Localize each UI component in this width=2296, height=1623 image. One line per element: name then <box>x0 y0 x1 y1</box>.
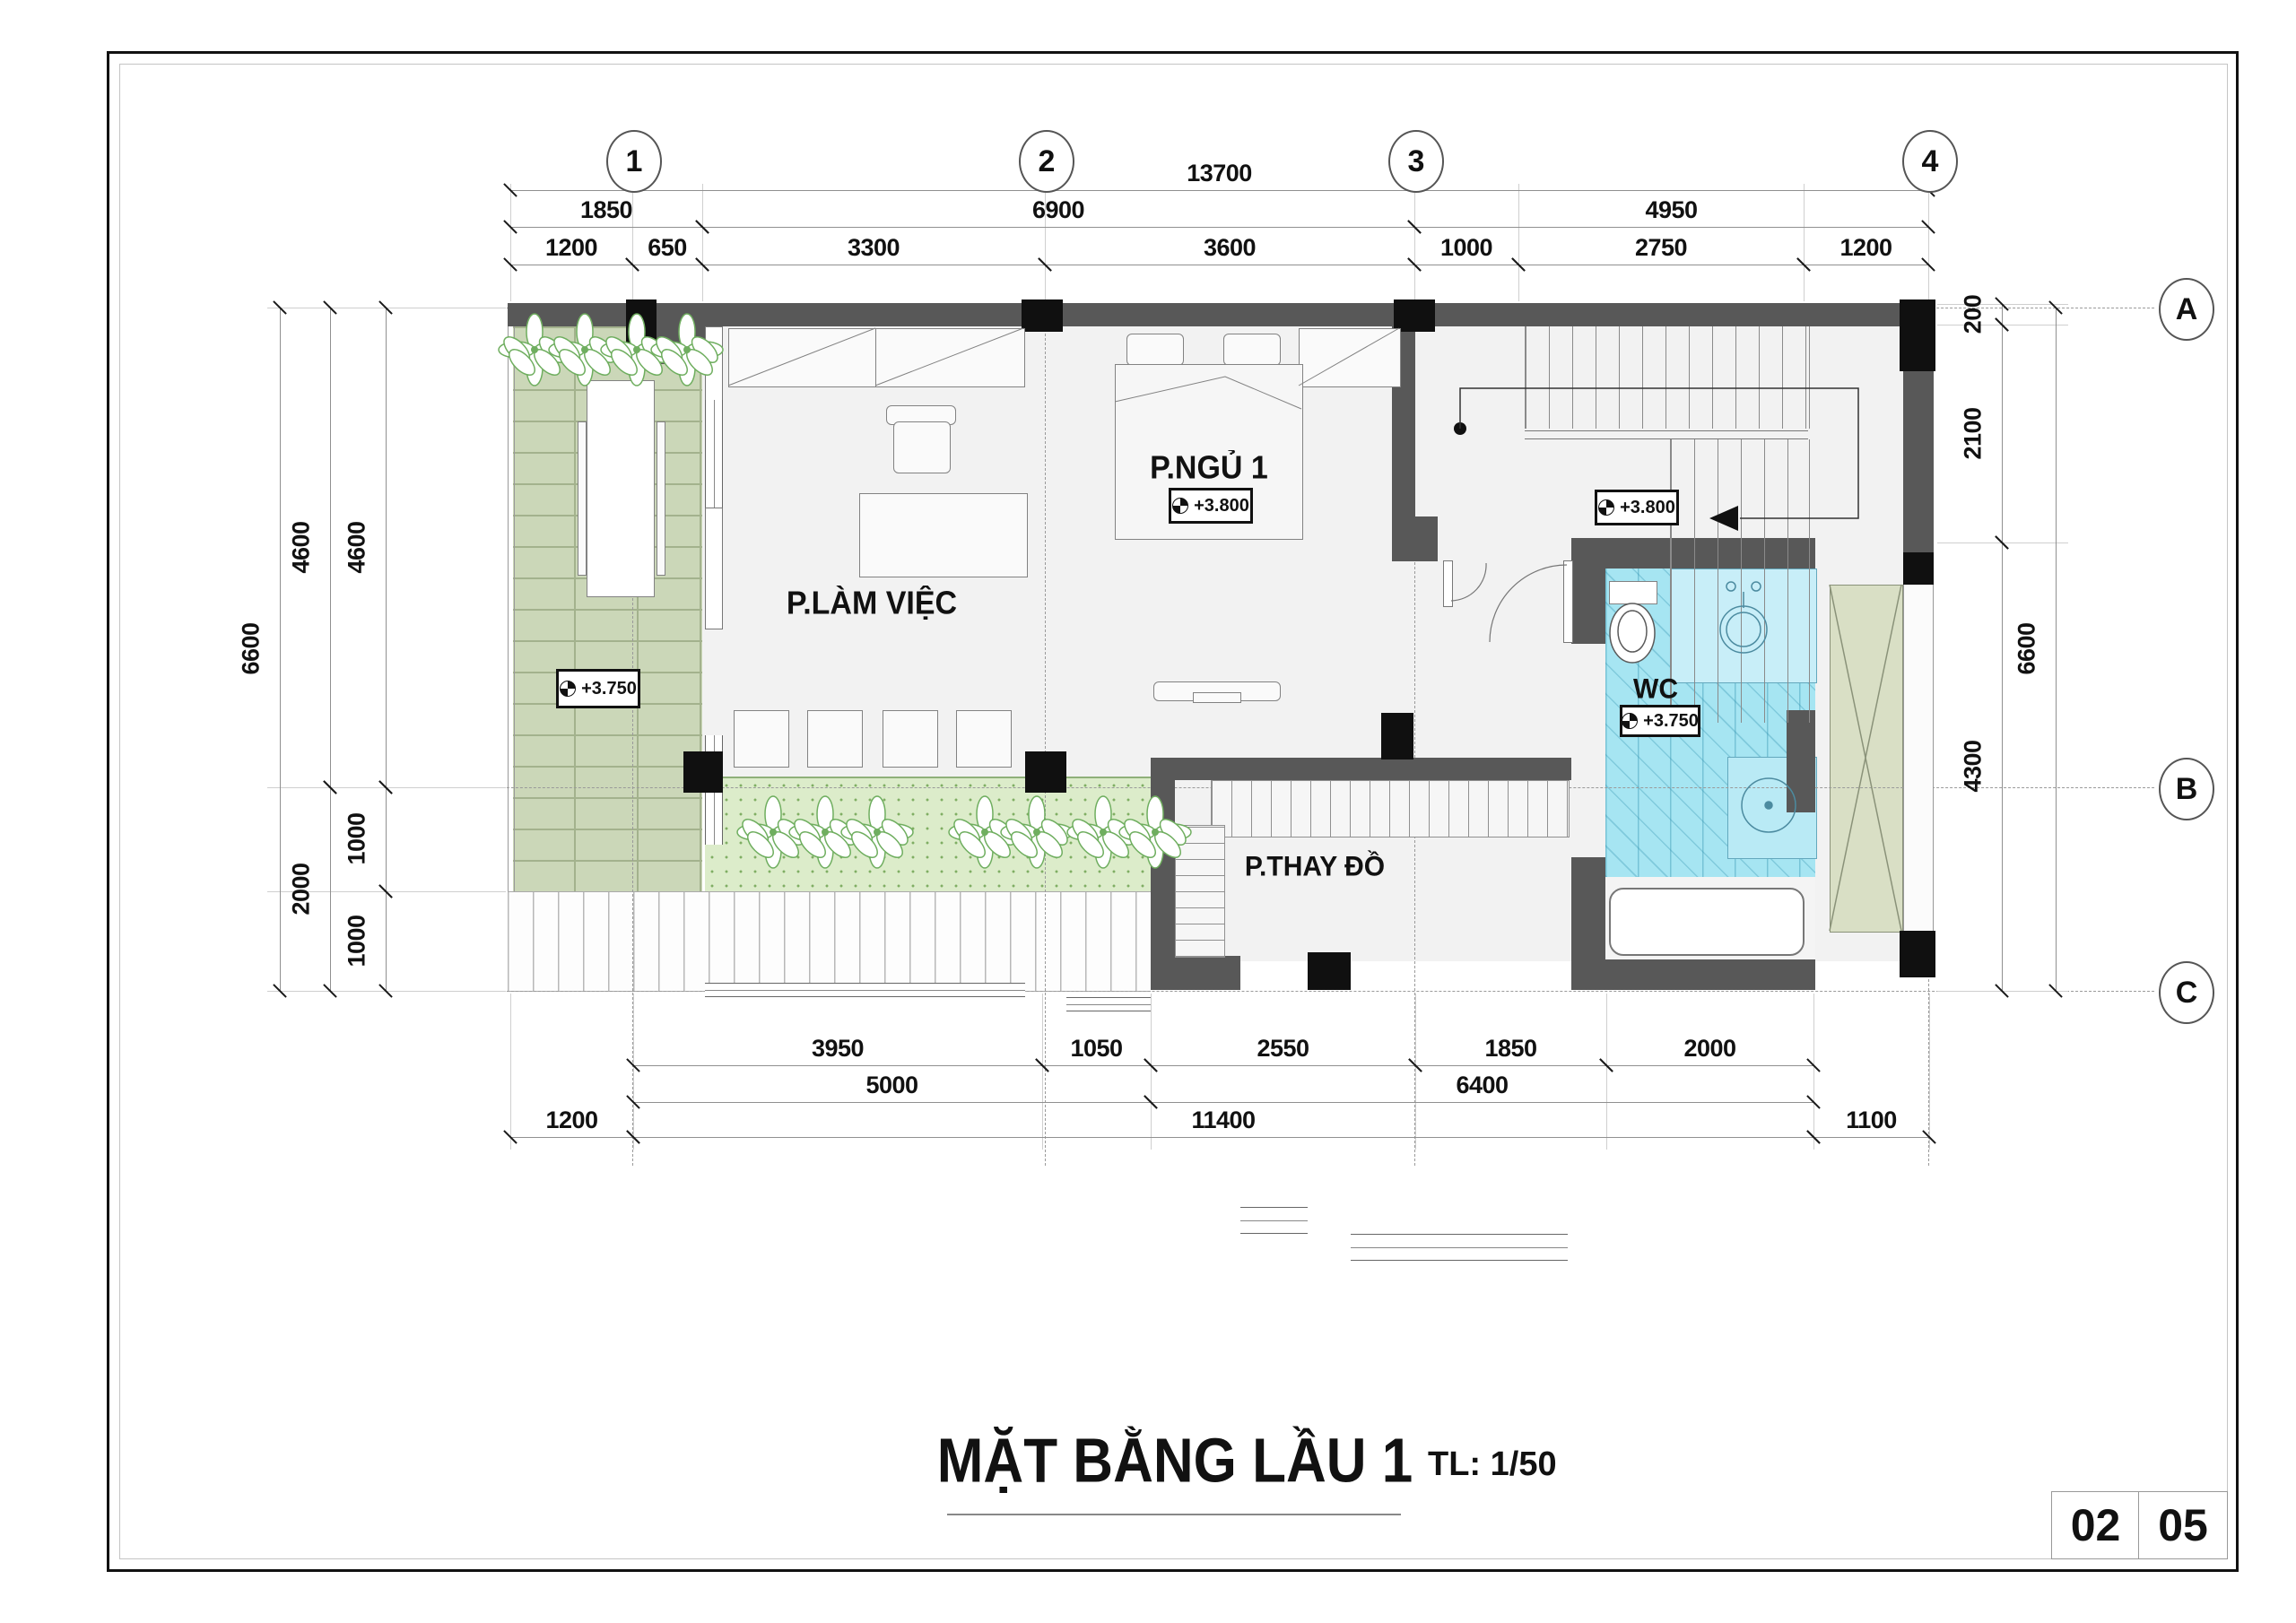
dimension-line <box>386 308 387 787</box>
wall-wc-left-upper <box>1571 568 1605 644</box>
dimension-line <box>2056 308 2057 991</box>
desk-chair-seat <box>893 421 951 473</box>
sheet-number-current: 02 <box>2051 1491 2140 1559</box>
wardrobe-left <box>1175 825 1225 958</box>
column-grid2-top <box>1022 299 1063 332</box>
office-left-window-1 <box>705 400 723 508</box>
level-value: +3.800 <box>1620 498 1675 518</box>
dimension-label: 1100 <box>1800 1107 1944 1134</box>
drawing-sheet: P.LÀM VIỆC P.NGỦ 1 P.THAY ĐỒ WC +3.750 +… <box>0 0 2296 1623</box>
wall-dressing-bottom <box>1151 956 1240 990</box>
drawing-scale: TL: 1/50 <box>1428 1445 1557 1484</box>
column-office-grid2 <box>1025 751 1066 793</box>
room-label-bedroom: P.NGỦ 1 <box>1110 450 1308 487</box>
dimension-line <box>1813 1137 1929 1138</box>
dimension-label: 1200 <box>500 1107 644 1134</box>
dimension-label: 2750 <box>1589 234 1733 262</box>
stair-upper-flight <box>1525 326 1810 429</box>
dimension-line <box>1414 265 1518 265</box>
closet-bedroom <box>1299 328 1401 387</box>
dimension-line <box>2002 325 2003 542</box>
sofa-seat-4 <box>956 710 1012 768</box>
wall-top-jog <box>653 325 705 364</box>
room-label-wc: WC <box>1615 673 1696 706</box>
dimension-line <box>510 190 1928 191</box>
office-bottom-window-2 <box>1066 997 1151 1011</box>
dimension-label: 11400 <box>1152 1107 1295 1134</box>
title-underline <box>947 1514 1401 1515</box>
level-badge-wc: +3.750 <box>1620 705 1700 737</box>
dimension-line <box>330 308 331 787</box>
column-office-left <box>683 751 723 793</box>
dimension-line <box>510 265 632 265</box>
column-bottom-mid <box>1308 952 1351 990</box>
dimension-label: 4600 <box>288 457 316 637</box>
wall-office-left-top <box>705 326 723 402</box>
dimension-line <box>386 891 387 991</box>
balcony-bench-left <box>578 421 587 576</box>
dimension-label: 6400 <box>1411 1072 1554 1099</box>
dimension-label: 1000 <box>344 851 371 1030</box>
level-icon <box>560 681 576 697</box>
door-jamb-left <box>1443 560 1453 607</box>
dimension-line <box>1606 1065 1813 1066</box>
dimension-label: 4950 <box>1600 196 1744 224</box>
dimension-line <box>633 1102 1151 1103</box>
column-hall <box>1381 713 1413 759</box>
desk <box>859 493 1028 577</box>
wall-top <box>508 303 1935 326</box>
balcony-table <box>587 380 655 597</box>
column-grid4-top <box>1900 299 1935 371</box>
dimension-label: 2550 <box>1212 1035 1355 1063</box>
wall-bathtub-bottom <box>1571 959 1815 990</box>
level-badge-stair: +3.800 <box>1595 490 1679 525</box>
dimension-line <box>702 265 1045 265</box>
drawing-title: MẶT BẰNG LẦU 1 <box>906 1426 1444 1497</box>
dimension-label: 5000 <box>821 1072 964 1099</box>
dimension-line <box>510 1137 633 1138</box>
column-grid1-top <box>626 299 657 344</box>
wall-wc-right-stub <box>1787 710 1815 812</box>
dimension-line <box>386 787 387 891</box>
dimension-line <box>1414 227 1928 228</box>
dimension-line <box>1518 265 1804 265</box>
dimension-line <box>330 787 331 991</box>
level-badge-bedroom: +3.800 <box>1169 488 1253 524</box>
dimension-label: 4600 <box>344 457 371 637</box>
dimension-line <box>633 1065 1042 1066</box>
grid-line-column <box>1045 190 1046 1166</box>
dimension-label: 6600 <box>2013 560 2041 739</box>
wall-hall-dressing <box>1170 758 1571 780</box>
grid-bubble-row: C <box>2159 961 2214 1024</box>
grid-bubble-column: 4 <box>1902 130 1958 193</box>
planter-bed <box>705 777 1166 895</box>
stair-handrail <box>1525 430 1808 439</box>
tv-console-inner <box>1193 692 1241 703</box>
void-shaft <box>1830 585 1903 933</box>
grid-bubble-column: 1 <box>606 130 662 193</box>
bottom-window-2 <box>1351 1234 1568 1261</box>
level-icon <box>1598 499 1614 516</box>
door-jamb-right <box>1563 560 1573 643</box>
dimension-line <box>633 1137 1813 1138</box>
column-right-low <box>1900 931 1935 977</box>
wall-wc-left-lower <box>1571 857 1605 961</box>
room-label-dressing: P.THAY ĐỒ <box>1198 851 1431 883</box>
dimension-label: 3950 <box>766 1035 909 1063</box>
dimension-line <box>280 308 281 991</box>
dimension-label: 650 <box>596 234 739 262</box>
level-badge-balcony: +3.750 <box>556 669 640 708</box>
wall-bedroom-right-stub <box>1392 516 1438 561</box>
dimension-line <box>702 227 1414 228</box>
sofa-seat-2 <box>807 710 863 768</box>
dimension-line <box>1042 1065 1151 1066</box>
terrace-louvre-strip <box>508 891 1151 992</box>
dimension-label: 4300 <box>1960 677 1987 856</box>
closet-office-1 <box>728 328 877 387</box>
bed-pillow-1 <box>1126 334 1184 366</box>
column-grid3-top <box>1394 299 1435 332</box>
dimension-label: 1850 <box>1439 1035 1583 1063</box>
dimension-line <box>1151 1065 1415 1066</box>
sofa-seat-3 <box>883 710 938 768</box>
bottom-window-1 <box>1240 1207 1308 1234</box>
level-value: +3.800 <box>1194 496 1249 516</box>
level-value: +3.750 <box>1643 711 1699 732</box>
dimension-line <box>1415 1065 1606 1066</box>
level-value: +3.750 <box>581 679 637 699</box>
room-label-office: P.LÀM VIỆC <box>710 586 1033 622</box>
wall-right-open <box>1903 585 1934 931</box>
balcony-bench-right <box>657 421 665 576</box>
extension-line <box>1042 994 1043 1150</box>
dimension-label: 6900 <box>987 196 1130 224</box>
grid-line-row <box>296 991 2154 992</box>
balcony-rail-left <box>508 326 515 891</box>
bathtub <box>1609 888 1805 956</box>
dimension-label: 3600 <box>1158 234 1301 262</box>
grid-bubble-column: 3 <box>1388 130 1444 193</box>
level-icon <box>1172 498 1188 514</box>
dimension-label: 3300 <box>802 234 945 262</box>
dimension-label: 6600 <box>238 560 265 739</box>
dimension-label: 1200 <box>1795 234 1938 262</box>
dimension-line <box>632 265 702 265</box>
dimension-label: 1050 <box>1025 1035 1169 1063</box>
office-bottom-window-1 <box>705 983 1025 997</box>
dimension-line <box>2002 304 2003 325</box>
dimension-line <box>1151 1102 1813 1103</box>
dimension-label: 2000 <box>1639 1035 1782 1063</box>
dimension-line <box>510 227 702 228</box>
extension-line <box>1606 994 1607 1150</box>
level-icon <box>1622 713 1638 729</box>
closet-office-2 <box>875 328 1025 387</box>
column-right-mid <box>1903 552 1934 585</box>
dimension-line <box>1045 265 1414 265</box>
dimension-label: 2100 <box>1960 343 1987 523</box>
dimension-line <box>1804 265 1928 265</box>
toilet-tank <box>1609 581 1657 604</box>
sheet-number-total: 05 <box>2138 1491 2228 1559</box>
grid-bubble-column: 2 <box>1019 130 1074 193</box>
dimension-label: 2000 <box>288 799 316 978</box>
dimension-label: 1000 <box>1395 234 1538 262</box>
dimension-label: 13700 <box>1148 160 1291 187</box>
dimension-label: 1850 <box>535 196 678 224</box>
bed-pillow-2 <box>1223 334 1281 366</box>
sofa-seat-1 <box>734 710 789 768</box>
wardrobe-top <box>1211 780 1570 838</box>
grid-bubble-row: B <box>2159 758 2214 820</box>
grid-bubble-row: A <box>2159 278 2214 341</box>
dimension-line <box>2002 542 2003 991</box>
